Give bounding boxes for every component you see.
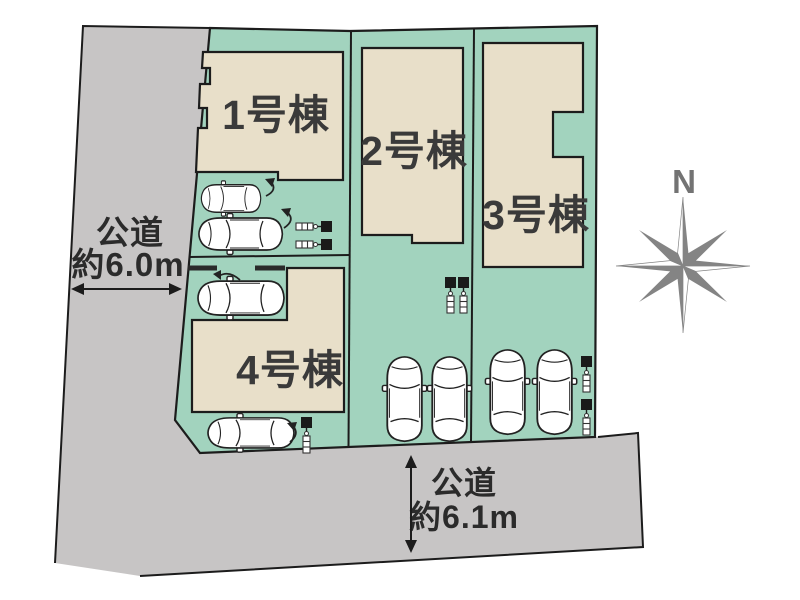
car bbox=[198, 276, 284, 319]
car bbox=[485, 350, 529, 434]
car bbox=[532, 350, 576, 434]
road-west-width: 約6.0m bbox=[71, 246, 184, 283]
road-south-name: 公道 bbox=[431, 465, 497, 501]
car bbox=[427, 357, 471, 441]
building-4-label: 4号棟 bbox=[236, 347, 344, 393]
building-2-label: 2号棟 bbox=[360, 128, 468, 174]
site-plan-canvas: 1号棟 2号棟 3号棟 4号棟 公道 約6.0m bbox=[0, 0, 800, 600]
car bbox=[382, 357, 426, 441]
road-south-width: 約6.1m bbox=[409, 499, 519, 535]
parking-wall-bar bbox=[255, 266, 285, 271]
building-3-label: 3号棟 bbox=[482, 192, 590, 238]
compass-rose: N bbox=[616, 163, 750, 333]
parking-wall-bar bbox=[188, 266, 217, 271]
site-plan-drawing: 1号棟 2号棟 3号棟 4号棟 公道 約6.0m bbox=[0, 0, 800, 600]
car bbox=[199, 214, 282, 255]
car bbox=[201, 181, 260, 216]
compass-north-label: N bbox=[672, 163, 696, 200]
car bbox=[208, 414, 294, 453]
building-1-label: 1号棟 bbox=[222, 92, 330, 138]
